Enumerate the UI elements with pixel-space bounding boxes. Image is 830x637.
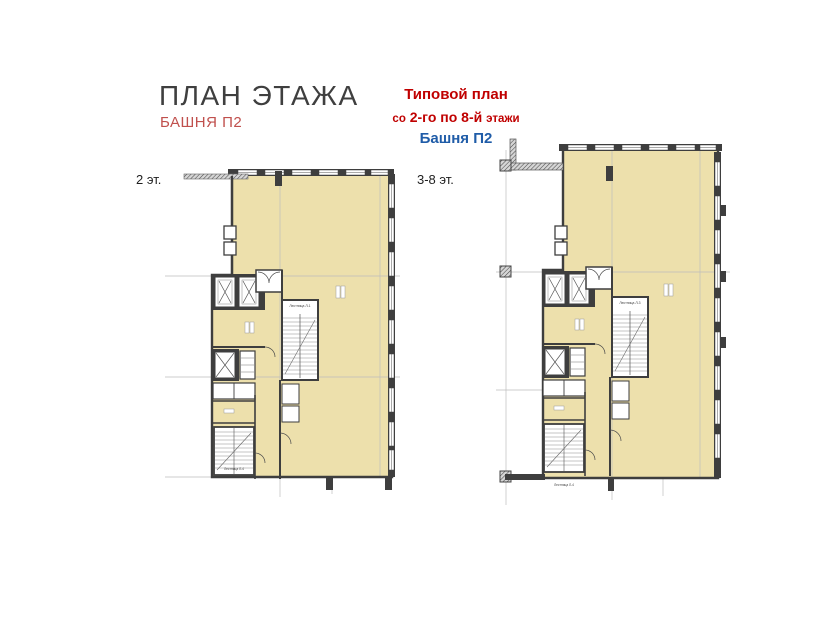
stair-label: Лестница Л-1 — [289, 304, 310, 308]
slide-page: { "header": { "title": "ПЛАН ЭТАЖА", "su… — [0, 0, 830, 637]
balcony-tab — [721, 271, 726, 282]
stair-label: Лестница Л-4 — [224, 467, 244, 471]
wall-stub — [385, 477, 392, 490]
stair-label: Лестница Л-4 — [554, 483, 574, 487]
balcony-tab — [721, 205, 726, 216]
wall-stub — [326, 477, 333, 490]
stair-label: Лестница Л-3 — [619, 301, 640, 305]
floor-plan-canvas: Лестница Л-1 Лестница Л-4 — [0, 0, 830, 637]
facade-top — [559, 144, 722, 151]
wall-stub — [505, 474, 545, 480]
column-marker — [606, 166, 613, 181]
facade-right — [388, 174, 395, 477]
canopy-strip — [184, 174, 248, 179]
column-marker — [275, 171, 282, 186]
wall-stub — [608, 478, 614, 491]
balcony-tab — [721, 337, 726, 348]
floor-plan-left: Лестница Л-1 Лестница Л-4 — [165, 169, 400, 497]
floor-plan-right: Лестница Л-3 Лестница Л-4 — [496, 139, 730, 505]
facade-top — [228, 169, 394, 176]
facade-right — [714, 152, 726, 478]
column-anchor — [500, 266, 511, 277]
extension-walls — [504, 139, 563, 170]
column-anchor — [500, 160, 511, 171]
